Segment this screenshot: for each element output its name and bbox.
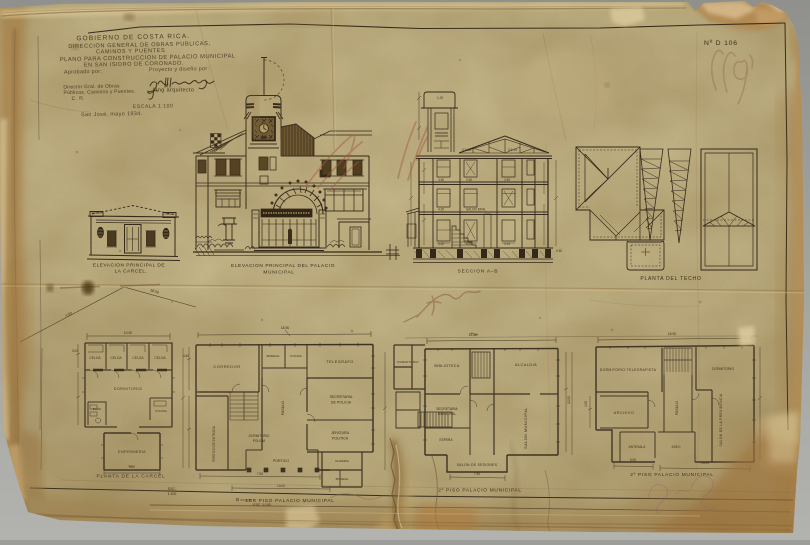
- svg-text:0.60: 0.60: [556, 249, 562, 253]
- svg-text:Nº D 106: Nº D 106: [704, 40, 738, 47]
- svg-text:ELEVACION PRINCIPAL DEL PALACI: ELEVACION PRINCIPAL DEL PALACIO: [231, 263, 335, 269]
- svg-text:4.20: 4.20: [466, 242, 472, 246]
- svg-text:4.20: 4.20: [438, 242, 444, 246]
- svg-text:B: B: [236, 497, 239, 502]
- svg-text:PORTICO: PORTICO: [273, 459, 290, 463]
- svg-text:BIBLIOTECA: BIBLIOTECA: [434, 364, 460, 368]
- svg-text:ESPERA: ESPERA: [440, 438, 454, 442]
- svg-text:JEFATURA: JEFATURA: [331, 431, 350, 435]
- svg-text:PASILLO: PASILLO: [281, 401, 285, 415]
- svg-text:BODEGA: BODEGA: [267, 354, 280, 358]
- svg-text:3.60: 3.60: [504, 178, 510, 182]
- svg-text:SALON MUNICIPAL: SALON MUNICIPAL: [524, 407, 528, 449]
- svg-text:SALON DE SESIONES: SALON DE SESIONES: [457, 463, 498, 467]
- svg-text:LA CARCEL.: LA CARCEL.: [115, 269, 148, 275]
- svg-text:MUNICIPAL: MUNICIPAL: [263, 270, 294, 276]
- svg-text:DORMITORIO: DORMITORIO: [397, 360, 419, 364]
- svg-text:3.60: 3.60: [438, 178, 444, 182]
- svg-text:0.9.15: 0.9.15: [508, 148, 517, 152]
- svg-text:SECCION A–B: SECCION A–B: [458, 269, 499, 275]
- svg-text:GUARDIA: GUARDIA: [335, 459, 349, 463]
- svg-text:COCINA: COCINA: [290, 354, 302, 358]
- svg-text:1.20: 1.20: [437, 96, 443, 100]
- svg-text:18.50: 18.50: [281, 326, 290, 330]
- svg-text:SECRETARIA: SECRETARIA: [330, 395, 353, 399]
- svg-text:TELEGRAFO: TELEGRAFO: [326, 360, 354, 364]
- svg-text:0.9.15: 0.9.15: [462, 148, 471, 152]
- svg-text:SECRETARIA: SECRETARIA: [436, 407, 458, 411]
- svg-text:1:100: 1:100: [168, 492, 177, 496]
- svg-text:MUNICIPAL: MUNICIPAL: [438, 412, 456, 416]
- svg-text:4.20: 4.20: [438, 208, 444, 212]
- svg-text:SALON MPAL: SALON MPAL: [466, 208, 486, 212]
- svg-text:1ER PISO PALACIO MUNICIPAL: 1ER PISO PALACIO MUNICIPAL: [245, 498, 334, 504]
- svg-text:PLANTA DEL TECHO: PLANTA DEL TECHO: [640, 276, 701, 282]
- svg-text:7.50: 7.50: [257, 472, 263, 476]
- svg-text:ALCALDIA: ALCALDIA: [515, 363, 537, 367]
- svg-text:ELEVACION PRINCIPAL DE: ELEVACION PRINCIPAL DE: [93, 263, 165, 269]
- svg-text:2º PISO PALACIO MUNICIPAL: 2º PISO PALACIO MUNICIPAL: [630, 472, 714, 478]
- svg-text:BODEGA: BODEGA: [336, 477, 349, 481]
- svg-text:POLITICA: POLITICA: [332, 437, 349, 441]
- svg-text:7.50: 7.50: [474, 472, 480, 476]
- svg-text:DE POLICIA: DE POLICIA: [331, 401, 352, 405]
- svg-text:4.20: 4.20: [504, 242, 510, 246]
- svg-text:3.60: 3.60: [466, 178, 472, 182]
